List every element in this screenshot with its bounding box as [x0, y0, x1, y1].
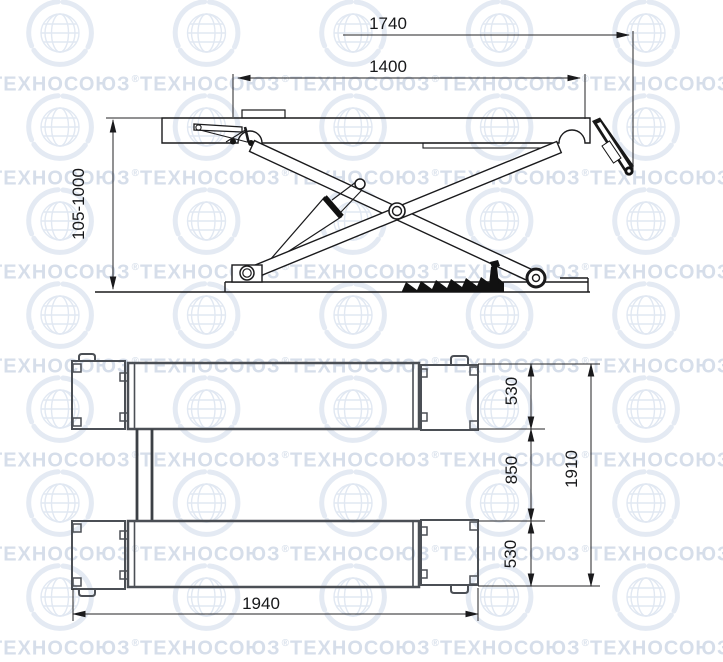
- plan-center-connector: [137, 429, 152, 521]
- dim-530-bottom-label: 530: [501, 540, 520, 568]
- dim-850-label: 850: [502, 456, 521, 484]
- platform-under-rail: [423, 143, 552, 148]
- plan-bottom-platform: [72, 520, 478, 596]
- plan-bottom-left-handle: [79, 589, 95, 596]
- dim-height-label: 105-1000: [69, 168, 88, 240]
- plan-top-left-handle: [79, 354, 95, 361]
- cylinder-rod-pin: [355, 179, 365, 189]
- plan-top-left-ramp: [72, 361, 125, 429]
- plan-view: [72, 354, 478, 596]
- dim-1910-label: 1910: [562, 450, 581, 488]
- platform-pad: [242, 110, 285, 118]
- plan-bottom-right-handle: [451, 585, 468, 593]
- scissor-center-pin: [389, 203, 405, 219]
- plan-top-platform: [72, 354, 478, 430]
- dim-1740-label: 1740: [369, 14, 407, 33]
- dim-1400-label: 1400: [369, 57, 407, 76]
- side-view: [95, 110, 634, 292]
- dim-1940-label: 1940: [242, 594, 280, 613]
- lock-pawl: [489, 260, 500, 285]
- base-roller: [527, 269, 545, 287]
- base-frame: [95, 278, 590, 292]
- plan-top-platform-rect: [128, 363, 419, 429]
- plan-bottom-platform-rect: [128, 521, 419, 587]
- dim-530-top-label: 530: [502, 377, 521, 405]
- plan-bottom-left-ramp: [72, 521, 125, 589]
- right-ramp: [592, 118, 634, 176]
- plan-top-right-handle: [451, 356, 468, 365]
- drawing-svg: 1740 1400 105-1000: [0, 0, 723, 662]
- lock-ratchet-rack: [402, 276, 504, 292]
- lower-pivot-block: [232, 265, 262, 282]
- technical-drawing-page: ТЕХНОСОЮЗ®ТЕХНОСОЮЗ®ТЕХНОСОЮЗ®ТЕХНОСОЮЗ®…: [0, 0, 723, 662]
